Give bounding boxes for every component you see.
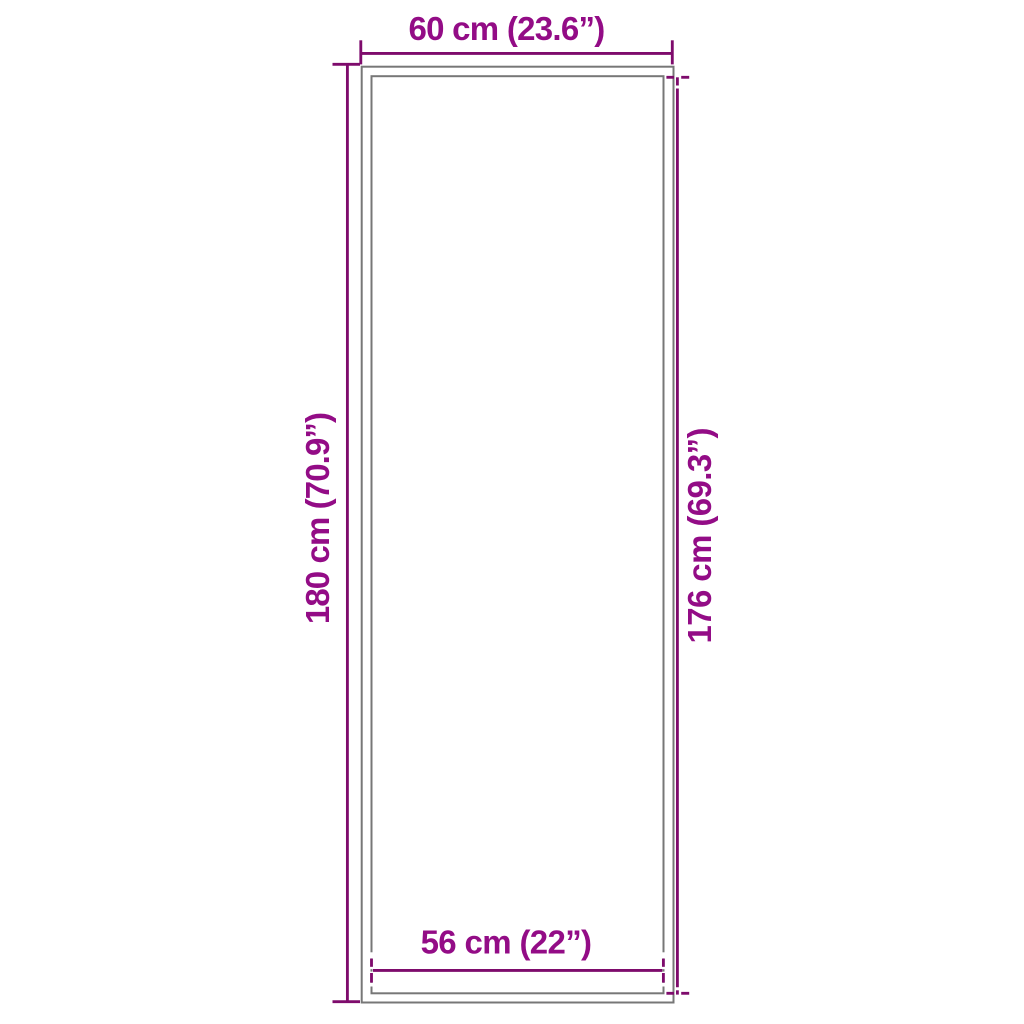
svg-text:180 cm (70.9”): 180 cm (70.9”) — [299, 413, 336, 624]
svg-text:60 cm (23.6”): 60 cm (23.6”) — [408, 10, 604, 47]
svg-text:176 cm (69.3”): 176 cm (69.3”) — [681, 428, 718, 643]
svg-text:56 cm (22”): 56 cm (22”) — [421, 924, 592, 961]
